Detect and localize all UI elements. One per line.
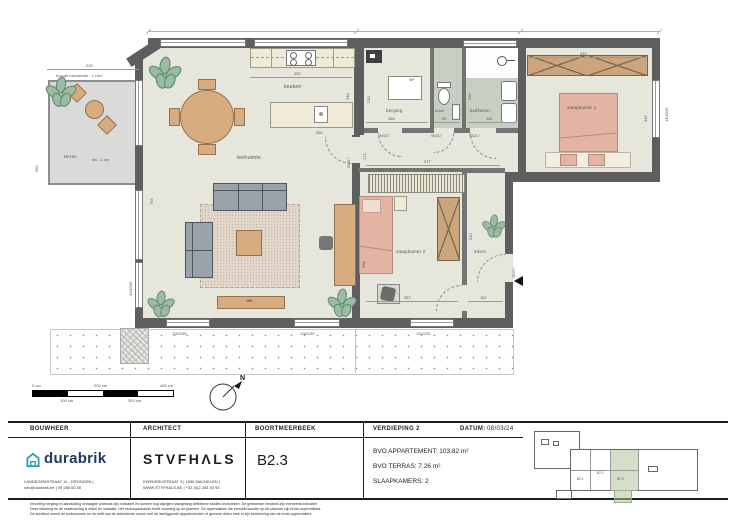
window-label: 100/235 [300,331,314,336]
wall-toilet-badkamer [462,48,466,132]
dim-badkamer-b: 161 [486,116,493,121]
bistro-table [85,100,104,119]
dim-sk2-b: 287 [404,295,411,300]
window [410,319,454,327]
keyplan-label-b21: B2.1 [577,477,584,481]
dim-terras-d: 560 [34,165,39,172]
window-sk1 [652,80,660,138]
shower-head [497,56,507,66]
keyplan-tab [556,490,572,499]
wall-inkom-top [467,168,505,173]
styfhals-logo: STVFHΛLS [143,451,236,467]
scalebar-0: 0 cm [32,383,41,388]
plant-icon [44,76,78,110]
dim-berging-d: 230 [366,96,371,103]
unit-code: B2.3 [257,452,288,469]
bouwheer-address-2: info@durabrik.be | 09 280 60 60 [24,485,81,490]
header-bouwheer: BOUWHEER [30,426,69,432]
room-label-keuken: keuken [284,84,301,90]
wc-bowl [438,88,450,105]
dim-terras-b: 230 [86,63,93,68]
window-label-sk1: 140/235 [664,108,669,122]
niveau-note: niv. -2 cm [92,157,109,162]
bouwheer-address-1: LANDEGEMSTRAAT 10 - DRONGEN | [24,479,94,484]
shower-arm [507,60,515,61]
door-label: 90/217 [469,134,480,138]
window-terrace-door [135,80,143,146]
burner [290,52,297,59]
window [463,40,517,47]
kitchen-island [270,102,353,128]
room-label-terras: terras [64,154,77,159]
window [135,262,143,308]
dim-line [434,122,460,123]
titleblock-header-rule [8,437,523,438]
floor-shower [466,48,518,78]
window [294,319,340,327]
titleblock-top-rule [8,421,728,423]
scalebar-200: 200 cm [94,383,107,388]
wardrobe-sk2-cell [437,197,460,261]
disclaimer-line-3: De architect neemt de buitenmuren en de … [30,512,312,517]
wall-sk2-top [358,168,468,172]
dining-chair [234,108,245,126]
window-label: 100/235 [172,331,186,336]
dim-inkom-b: 110 [480,295,486,300]
door-label: 90/217 [379,134,390,138]
keyplan-wall [638,450,639,490]
dim-line [366,301,458,302]
window-label: 100/235 [416,331,430,336]
wall-wing-bottom [513,172,660,182]
dim-eiland: 260 [316,130,323,135]
keyplan-detail [553,441,559,446]
room-label-slaapkamer1: slaapkamer 1 [567,105,596,110]
floorplan-sheet: 90/217 90/217 90/217 90/217 98/217 100/2… [0,0,736,526]
dining-chair [198,79,216,90]
wardrobe-sk1-cell [587,55,648,76]
wardrobe-sliding-sk2 [368,174,465,193]
dining-chair [169,108,180,126]
concrete-block [120,328,149,364]
header-floor: VERDIEPING 2 [373,426,420,432]
dim-sk2-d: 328 [361,261,366,268]
plant-icon [146,290,176,320]
desk-chair-sk2 [380,286,397,303]
keyplan-highlight-tab [614,490,632,503]
washbasin [501,81,517,101]
wall-badkamer-sk1 [518,48,526,172]
door-opening-sk2 [462,285,467,311]
dim-badkamer-d: 230 [467,93,472,100]
sofa-3seat [213,183,287,211]
bvo-terrace: BVO TERRAS: 7.26 m² [373,463,440,470]
north-label: N [240,375,245,382]
header-date-value: 08/03/24 [487,426,514,432]
wall-shaft [354,48,364,135]
bed-double [559,93,618,152]
dim-tick [657,29,663,35]
heatpump-label: WP [409,78,415,82]
washbasin [501,103,517,123]
scalebar [32,390,174,397]
scalebar-400: 400 cm [160,383,173,388]
heatpump-unit [388,76,422,100]
room-label-slaapkamer2: slaapkamer 2 [396,249,425,254]
desk-chair-living [319,236,333,250]
bed-pillow [362,199,381,213]
sink-drain [319,112,323,116]
dim-line-top [148,31,660,32]
keyplan-wall [571,470,638,471]
dim-line [250,77,352,78]
burner [305,52,312,59]
burner [290,59,297,66]
dim-sk2-h: 510 [468,233,473,240]
room-label-toilet: toilet [435,109,444,113]
plant-icon [481,214,507,240]
tv-sideboard-label: 199 [246,299,252,303]
wall-berging-toilet [430,48,434,128]
boiler [452,104,460,120]
durabrik-logo: durabrik [44,450,106,467]
titleblock-divider [245,421,246,498]
room-label-inkom: inkom [474,249,486,254]
room-label-leefruimte: leefruimte [237,155,261,161]
kitchen-cabinet [250,48,272,68]
dining-table [180,90,234,144]
wall-inkom-right [505,172,513,328]
window-label: 100/235 [128,282,133,296]
bench-cushion [588,154,605,166]
durabrik-house-icon [24,451,42,469]
dim-toilet-b: 90 [442,116,446,121]
bvo-apartment: BVO APPARTEMENT: 103.82 m² [373,448,469,455]
scalebar-100: 100 cm [60,398,73,403]
door-label: 90/217 [431,134,442,138]
scalebar-300: 300 cm [128,398,141,403]
burner [305,59,312,66]
dim-berging-b: 186 [388,116,395,121]
dim-sk1-b: 340 [580,51,587,56]
dim-sk1-d: 345 [643,115,648,122]
bench-cushion [560,154,577,166]
roof-joint-line [355,329,356,373]
coffee-table [236,230,262,256]
desk-living [334,204,356,286]
kitchen-cabinet [333,48,355,68]
plant-icon [147,56,183,92]
keyplan-label-b22: B2.2 [597,471,604,475]
door-label-entry: 98/217 [512,267,516,278]
nightstand [394,196,407,211]
dim-line [528,57,646,58]
dim-line [47,69,139,70]
dim-living-h: 755 [149,198,154,205]
dim-line [468,301,503,302]
dim-line [366,165,500,166]
keyplan-label-b23: B2.3 [617,477,624,481]
keyplan-detail [541,439,549,445]
electrical-cabinet-detail [370,54,375,58]
architect-address-1: KWEKERIJSTRAAT 3 | 1830 MACHELEN | [143,479,220,484]
dim-hal: 377 [424,159,431,164]
dim-keuken-d: 240 [345,93,350,100]
north-arrow-icon [203,374,257,416]
dim-line [366,122,428,123]
plant-icon [326,288,358,320]
dim-keuken-b: 300 [294,71,301,76]
dim-hal-d: 171 [362,153,367,160]
door-opening-living [352,137,360,163]
header-project: BOORTMEERBEEK [255,426,316,432]
window [135,190,143,260]
window [254,39,348,47]
header-date-label: DATUM: [460,426,486,432]
window [166,319,210,327]
door-label: 90/217 [347,157,351,168]
header-architect: ARCHITECT [143,426,181,432]
window [160,39,246,47]
wardrobe-sk1-cell [527,55,587,76]
titleblock-divider [130,421,131,498]
room-label-berging: berging [386,108,402,113]
bedroom-count: SLAAPKAMERS: 2 [373,478,429,485]
architect-address-2: WWW.STYFHALS.BE | +32 (0)2 253 40 53 [143,485,220,490]
sofa-2seat [185,222,213,278]
dim-line [468,122,516,123]
keyplan-detail [648,466,658,472]
dining-chair [198,144,216,155]
room-label-badkamer: badkamer [470,108,490,113]
titleblock-divider [363,421,364,498]
